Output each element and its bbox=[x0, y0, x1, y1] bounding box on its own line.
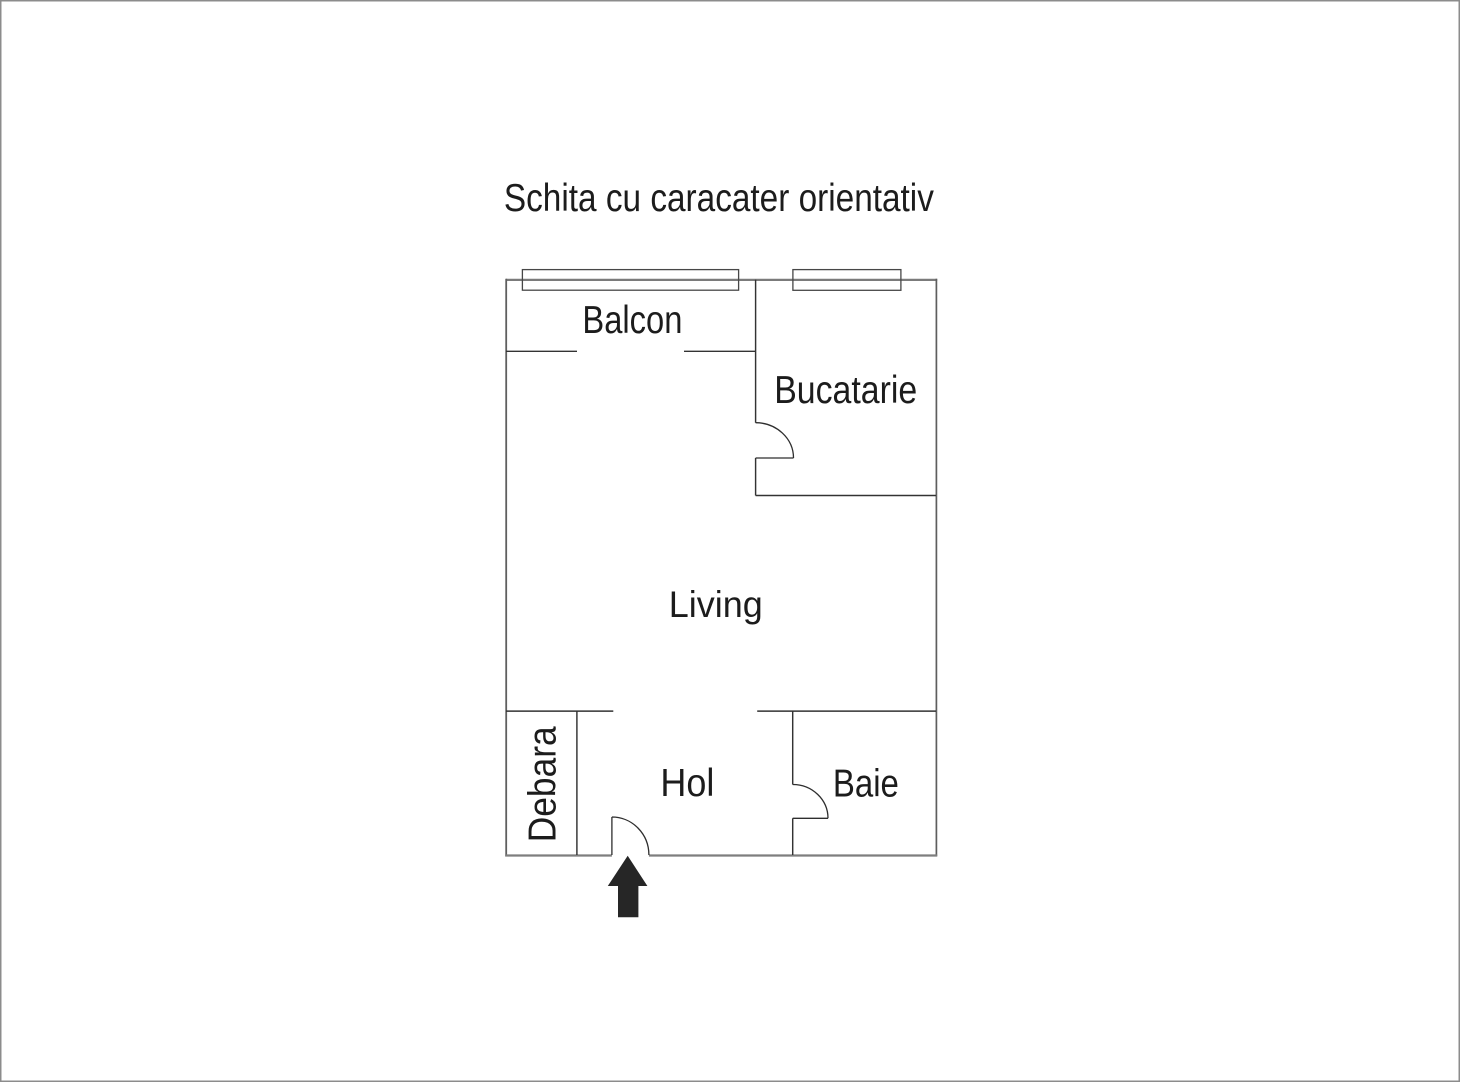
svg-text:Schita cu caracater orientativ: Schita cu caracater orientativ bbox=[504, 177, 934, 220]
svg-text:Hol: Hol bbox=[660, 762, 714, 805]
svg-text:Baie: Baie bbox=[833, 762, 899, 805]
svg-text:Bucatarie: Bucatarie bbox=[774, 369, 917, 412]
svg-text:Balcon: Balcon bbox=[582, 299, 682, 342]
svg-text:Living: Living bbox=[669, 584, 763, 625]
svg-text:Debara: Debara bbox=[522, 726, 565, 842]
